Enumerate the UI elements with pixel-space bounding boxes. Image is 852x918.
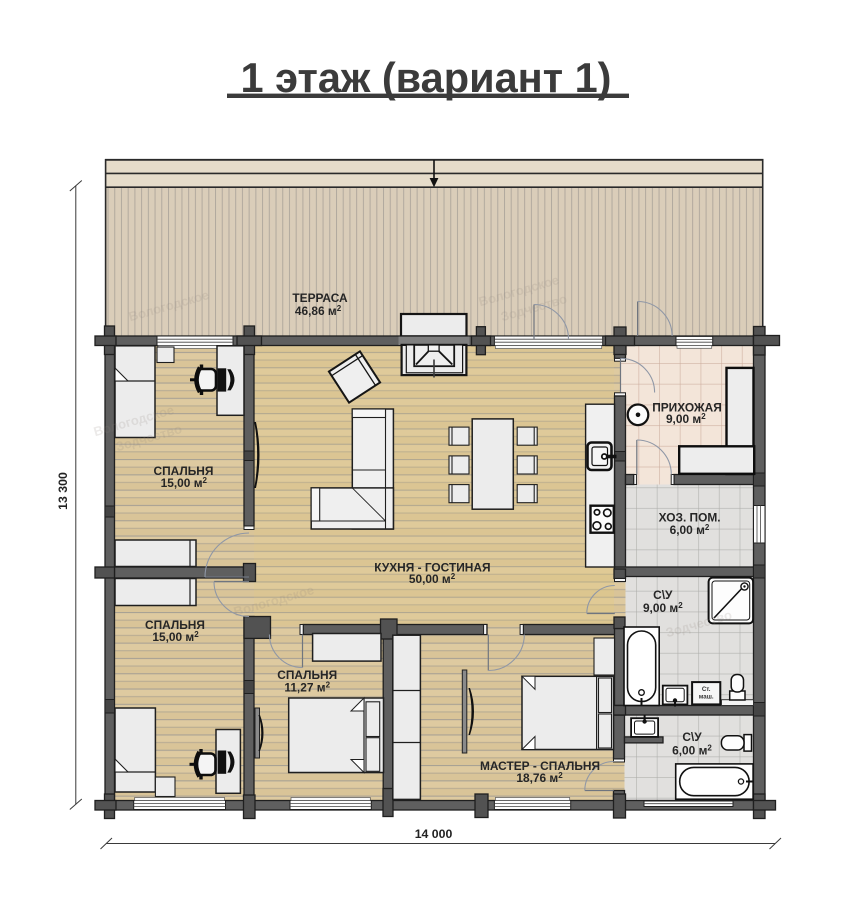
svg-text:Ст.: Ст. (702, 686, 711, 693)
svg-text:18,76 м2: 18,76 м2 (516, 771, 563, 785)
svg-text:9,00 м2: 9,00 м2 (666, 412, 706, 426)
svg-text:С\У: С\У (682, 730, 702, 744)
svg-text:13 300: 13 300 (56, 472, 70, 510)
svg-text:9,00 м2: 9,00 м2 (643, 601, 683, 615)
svg-text:С\У: С\У (653, 588, 673, 602)
svg-text:маш.: маш. (699, 694, 714, 701)
svg-text:11,27 м2: 11,27 м2 (284, 681, 330, 695)
svg-text:14 000: 14 000 (415, 827, 453, 841)
svg-text:46,86 м2: 46,86 м2 (295, 304, 342, 318)
svg-text:6,00 м2: 6,00 м2 (670, 523, 710, 537)
svg-text:6,00 м2: 6,00 м2 (672, 743, 712, 757)
svg-text:50,00 м2: 50,00 м2 (409, 572, 456, 586)
svg-text:15,00 м2: 15,00 м2 (152, 630, 199, 644)
svg-text:15,00 м2: 15,00 м2 (161, 476, 208, 490)
